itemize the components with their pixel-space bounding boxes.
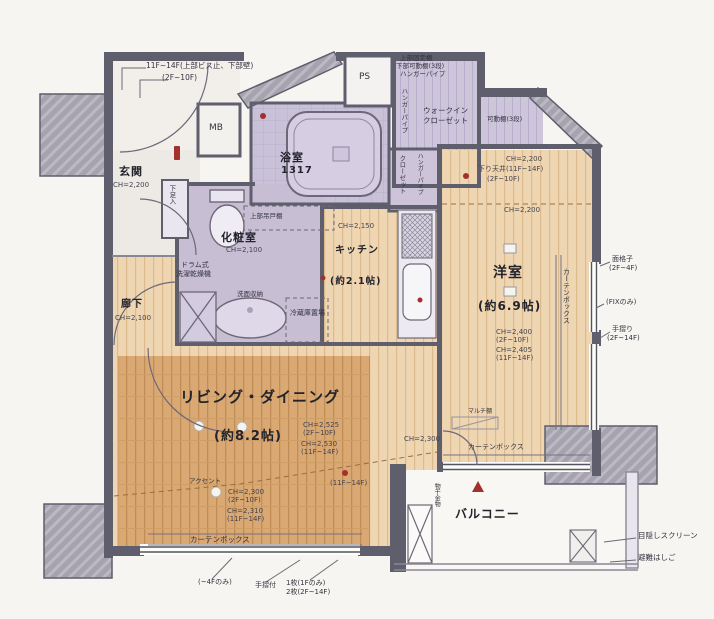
bottom-callout-handrail: 手摺付 bbox=[255, 582, 276, 589]
closet-label: クローゼット bbox=[398, 155, 405, 194]
living-dining-label: リビング・ダイニング bbox=[180, 390, 340, 406]
walk-in-closet-label-1: ウォークイン bbox=[423, 107, 468, 115]
bottom-callout-floors: (~4Fのみ) bbox=[198, 579, 232, 586]
kitchen-ceiling-height: CH=2,150 bbox=[338, 223, 374, 230]
ld-ch-2-floors: (11F~14F) bbox=[301, 449, 338, 456]
kitchen-size: (約2.1帖) bbox=[330, 277, 382, 287]
laundry-bracket-box bbox=[408, 505, 432, 563]
washer-label-2: 洗濯乾燥機 bbox=[176, 271, 211, 278]
floor-plan-drawing bbox=[0, 0, 714, 619]
wic-shelf-note-3: ハンガーパイプ bbox=[400, 71, 445, 78]
fridge-space-label: 冷蔵庫置場 bbox=[290, 310, 325, 317]
western-ch-1: CH=2,200 bbox=[506, 156, 542, 163]
powder-room-label: 化粧室 bbox=[221, 232, 257, 244]
movable-shelf-label: 可動棚(3段) bbox=[487, 116, 522, 123]
kitchen-counter bbox=[398, 210, 436, 338]
curtain-box-right: カーテンボックス bbox=[562, 268, 569, 324]
washer bbox=[180, 292, 216, 342]
bottom-callout-glass-1: 1枚(1Fのみ) bbox=[286, 580, 325, 587]
multi-shelf-label: マルチ棚 bbox=[468, 409, 492, 415]
privacy-screen-callout: 目隠しスクリーン bbox=[638, 532, 698, 540]
upper-cabinet-label: 上部吊戸棚 bbox=[250, 213, 283, 220]
upper-wall-note-2: (2F~10F) bbox=[162, 74, 197, 82]
escape-hatch bbox=[570, 530, 596, 562]
meter-box-label: MB bbox=[209, 124, 223, 133]
lattice-callout: 面格子 bbox=[612, 256, 633, 263]
entrance-label: 玄関 bbox=[119, 166, 143, 178]
hallway-ceiling-height: CH=2,100 bbox=[115, 315, 151, 322]
western-drop-ceiling-1: 下り天井(11F~14F) bbox=[478, 166, 543, 173]
accent-label: アクセント bbox=[189, 478, 221, 485]
shoe-box-label: 下足入 bbox=[168, 185, 175, 205]
upper-wall-note: 11F~14F(上部ビス止、下部壁) bbox=[146, 62, 253, 70]
wic-shelf-note-1: 上部固定棚 bbox=[400, 55, 433, 62]
wic-hanger-pipe: ハンガーパイプ bbox=[400, 88, 407, 134]
wic-shelf-note-2: 下部可動棚(3段) bbox=[396, 63, 444, 70]
floor-plan: 11F~14F(上部ビス止、下部壁) (2F~10F) MB PS 浴室 131… bbox=[0, 0, 714, 619]
bathroom-size: 1317 bbox=[281, 166, 313, 177]
walk-in-closet-label-2: クローゼット bbox=[423, 117, 468, 125]
hallway-label: 廊下 bbox=[121, 300, 143, 311]
ld-ch-3-floors: (2F~10F) bbox=[228, 497, 261, 504]
ld-floor-note: (11F~14F) bbox=[330, 480, 367, 487]
curtain-box-bottom: カーテンボックス bbox=[190, 536, 250, 544]
bottom-callout-glass-2: 2枚(2F~14F) bbox=[286, 589, 330, 596]
ld-ch-5: CH=2,300 bbox=[404, 436, 440, 443]
western-ch-2: CH=2,200 bbox=[504, 207, 540, 214]
bathroom-label: 浴室 bbox=[280, 152, 304, 164]
western-room-size: (約6.9帖) bbox=[478, 300, 541, 313]
fix-window-callout: (FIXのみ) bbox=[606, 299, 636, 306]
western-ch-3-floors: (2F~10F) bbox=[496, 337, 529, 344]
western-ch-4-floors: (11F~14F) bbox=[496, 355, 533, 362]
closet-hanger-pipe: ハンガーパイプ bbox=[416, 153, 422, 195]
balcony-label: バルコニー bbox=[455, 508, 520, 521]
pipe-space-label: PS bbox=[359, 73, 370, 82]
lattice-callout-floors: (2F~4F) bbox=[609, 265, 637, 272]
handrail-callout-floors: (2F~14F) bbox=[607, 335, 640, 342]
laundry-bracket-label: 物干金物 bbox=[433, 483, 439, 507]
ld-ch-4-floors: (11F~14F) bbox=[227, 516, 264, 523]
western-drop-ceiling-2: (2F~10F) bbox=[487, 176, 520, 183]
powder-room-ceiling-height: CH=2,100 bbox=[226, 247, 262, 254]
western-room-label: 洋室 bbox=[493, 266, 523, 281]
curtain-box-west: カーテンボックス bbox=[468, 444, 524, 451]
vanity-sink bbox=[214, 298, 286, 338]
escape-ladder-callout: 避難はしご bbox=[638, 554, 676, 562]
ld-ch-1-floors: (2F~10F) bbox=[303, 430, 336, 437]
handrail-callout: 手摺り bbox=[612, 326, 633, 333]
vanity-storage-label: 洗面収納 bbox=[237, 291, 263, 298]
kitchen-label: キッチン bbox=[335, 246, 379, 257]
living-dining-size: (約8.2帖) bbox=[214, 430, 282, 444]
washer-label-1: ドラム式 bbox=[181, 262, 209, 269]
entrance-ceiling-height: CH=2,200 bbox=[113, 182, 149, 189]
